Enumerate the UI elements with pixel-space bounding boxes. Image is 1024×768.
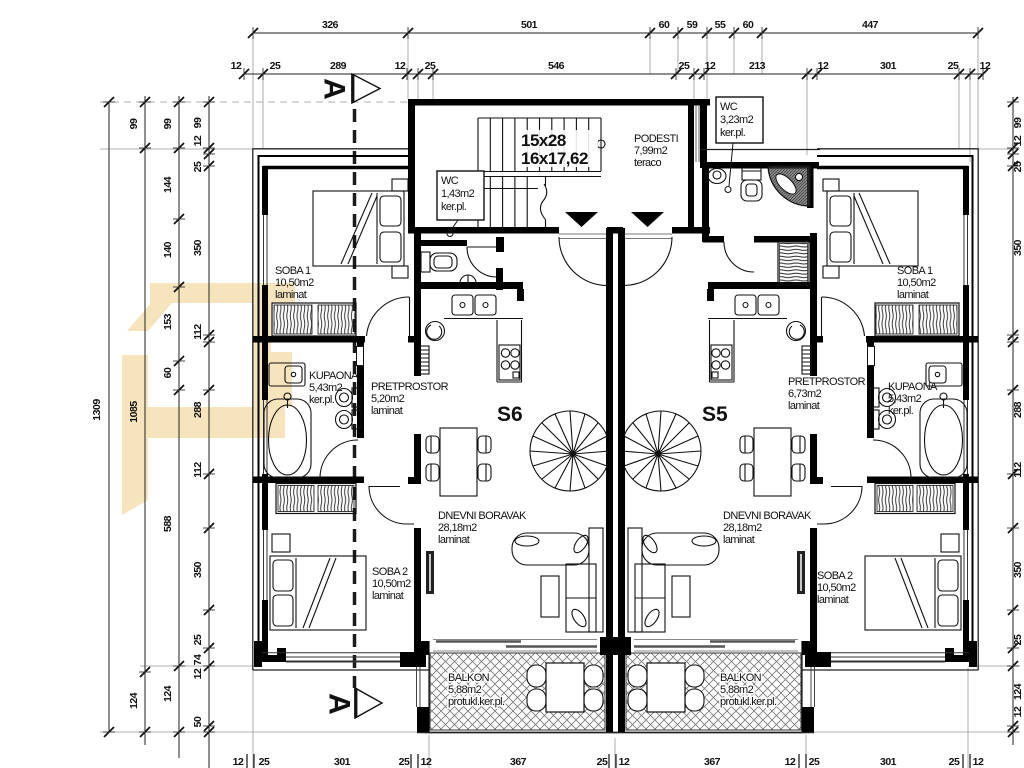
svg-text:112: 112 [192,462,204,478]
svg-text:25: 25 [1012,634,1024,645]
svg-text:25: 25 [425,60,436,72]
svg-text:A: A [323,693,356,715]
svg-text:5,43m2: 5,43m2 [888,393,922,405]
svg-text:25: 25 [1012,161,1024,172]
svg-text:10,50m2: 10,50m2 [897,277,936,289]
svg-text:74: 74 [192,654,204,665]
svg-text:ker.pl.: ker.pl. [888,405,914,417]
svg-text:16x17,62: 16x17,62 [521,149,588,168]
svg-text:15x28: 15x28 [521,131,566,150]
svg-text:288: 288 [1012,401,1024,418]
svg-text:laminat: laminat [438,534,470,546]
svg-text:12: 12 [1012,706,1024,717]
svg-text:60: 60 [659,19,670,31]
svg-text:28,18m2: 28,18m2 [723,522,762,534]
svg-text:501: 501 [521,19,538,31]
svg-text:25: 25 [597,756,608,768]
svg-text:SOBA 1: SOBA 1 [275,265,311,277]
svg-text:301: 301 [880,756,897,768]
svg-text:301: 301 [880,60,897,72]
svg-text:12: 12 [705,60,716,72]
svg-text:25: 25 [948,60,959,72]
svg-text:5,88m2: 5,88m2 [448,684,482,696]
svg-text:124: 124 [128,692,140,709]
svg-text:ker.pl.: ker.pl. [309,394,335,406]
svg-text:DNEVNI BORAVAK: DNEVNI BORAVAK [438,510,527,522]
svg-text:ker.pl.: ker.pl. [441,201,467,213]
svg-text:WC: WC [441,175,459,187]
svg-text:protukl.ker.pl.: protukl.ker.pl. [448,696,505,708]
svg-text:25: 25 [949,756,960,768]
svg-text:BALKON: BALKON [720,672,762,684]
svg-text:PRETPROSTOR: PRETPROSTOR [371,381,449,393]
svg-text:BALKON: BALKON [448,672,490,684]
svg-text:350: 350 [192,561,204,578]
svg-text:10,50m2: 10,50m2 [817,582,856,594]
svg-text:WC: WC [720,101,738,113]
svg-text:99: 99 [1012,117,1024,128]
svg-text:25: 25 [192,161,204,172]
svg-text:25: 25 [192,634,204,645]
svg-text:12: 12 [192,668,204,679]
svg-text:PRETPROSTOR: PRETPROSTOR [788,376,866,388]
svg-text:55: 55 [715,19,726,31]
svg-text:124: 124 [162,685,174,702]
svg-text:12: 12 [1012,135,1024,146]
svg-text:KUPAONA: KUPAONA [888,381,938,393]
svg-text:laminat: laminat [788,400,820,412]
svg-text:447: 447 [862,19,879,31]
svg-text:588: 588 [162,515,174,532]
svg-text:laminat: laminat [723,534,755,546]
svg-text:12: 12 [192,135,204,146]
svg-text:12: 12 [421,756,432,768]
svg-text:140: 140 [162,241,174,258]
svg-text:PODESTI: PODESTI [634,133,679,145]
svg-text:367: 367 [704,756,721,768]
svg-text:213: 213 [749,60,766,72]
svg-text:350: 350 [1012,561,1024,578]
svg-text:367: 367 [510,756,527,768]
svg-text:12: 12 [818,60,829,72]
svg-text:7,99m2: 7,99m2 [634,145,668,157]
svg-text:99: 99 [192,117,204,128]
svg-text:12: 12 [980,60,991,72]
svg-text:5,43m2: 5,43m2 [309,382,343,394]
svg-text:1085: 1085 [128,401,140,423]
svg-text:50: 50 [192,716,204,727]
svg-text:28,18m2: 28,18m2 [438,522,477,534]
svg-text:99: 99 [128,118,140,129]
svg-text:124: 124 [1012,683,1024,700]
svg-text:laminat: laminat [275,289,307,301]
svg-text:25: 25 [270,60,281,72]
svg-text:teraco: teraco [634,157,661,169]
svg-text:1,43m2: 1,43m2 [441,188,475,200]
svg-text:546: 546 [548,60,565,72]
svg-text:59: 59 [687,19,698,31]
svg-text:60: 60 [743,19,754,31]
svg-text:12: 12 [785,756,796,768]
svg-text:laminat: laminat [371,405,403,417]
svg-text:25: 25 [679,60,690,72]
svg-text:288: 288 [192,401,204,418]
svg-text:laminat: laminat [817,594,849,606]
svg-text:25: 25 [259,756,270,768]
svg-text:5,88m2: 5,88m2 [720,684,754,696]
svg-text:12: 12 [231,60,242,72]
svg-text:112: 112 [192,324,204,340]
svg-text:6,73m2: 6,73m2 [788,388,822,400]
svg-text:12: 12 [233,756,244,768]
svg-text:protukl.ker.pl.: protukl.ker.pl. [720,696,777,708]
svg-text:SOBA 2: SOBA 2 [817,570,853,582]
svg-text:KUPAONA: KUPAONA [309,370,359,382]
svg-text:25: 25 [809,756,820,768]
svg-text:12: 12 [973,756,984,768]
svg-text:112: 112 [1012,462,1024,478]
svg-text:301: 301 [334,756,351,768]
svg-text:laminat: laminat [372,590,404,602]
svg-text:326: 326 [322,19,339,31]
svg-text:12: 12 [395,60,406,72]
svg-text:10,50m2: 10,50m2 [275,277,314,289]
svg-text:SOBA 2: SOBA 2 [372,566,408,578]
svg-text:laminat: laminat [897,289,929,301]
svg-text:3,23m2: 3,23m2 [720,114,754,126]
svg-text:12: 12 [619,756,630,768]
svg-text:144: 144 [162,176,174,193]
svg-text:SOBA 1: SOBA 1 [897,265,933,277]
svg-text:S6: S6 [497,403,523,426]
svg-text:60: 60 [162,367,174,378]
svg-text:350: 350 [1012,239,1024,256]
svg-text:25: 25 [399,756,410,768]
svg-text:350: 350 [192,239,204,256]
svg-text:A: A [318,78,351,100]
svg-text:10,50m2: 10,50m2 [372,578,411,590]
svg-text:DNEVNI BORAVAK: DNEVNI BORAVAK [723,510,812,522]
svg-text:99: 99 [162,118,174,129]
svg-text:1309: 1309 [91,399,103,421]
svg-text:153: 153 [162,313,174,330]
svg-text:5,20m2: 5,20m2 [371,393,405,405]
svg-text:289: 289 [330,60,347,72]
svg-text:ker.pl.: ker.pl. [720,127,746,139]
svg-text:S5: S5 [702,403,728,426]
